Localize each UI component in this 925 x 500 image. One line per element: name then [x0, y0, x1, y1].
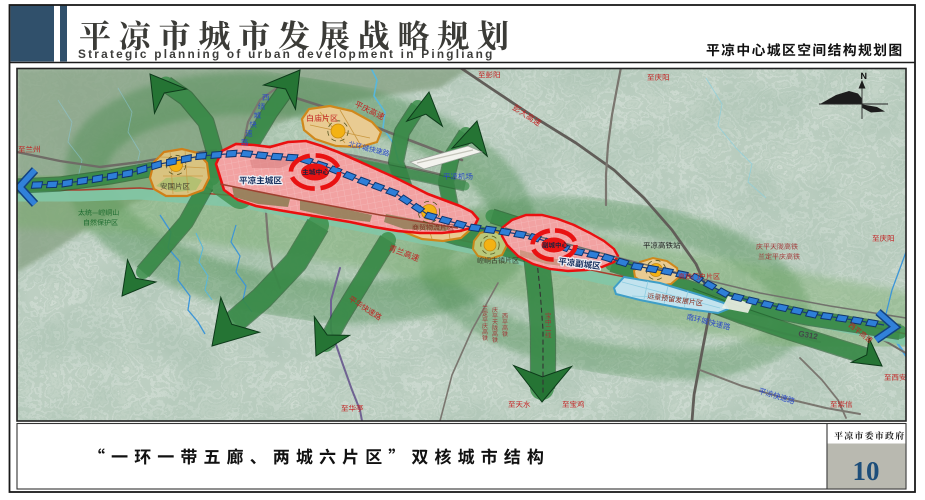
svg-text:10: 10 [853, 456, 880, 486]
svg-text:Strategic planning of urban de: Strategic planning of urban development … [78, 47, 495, 61]
